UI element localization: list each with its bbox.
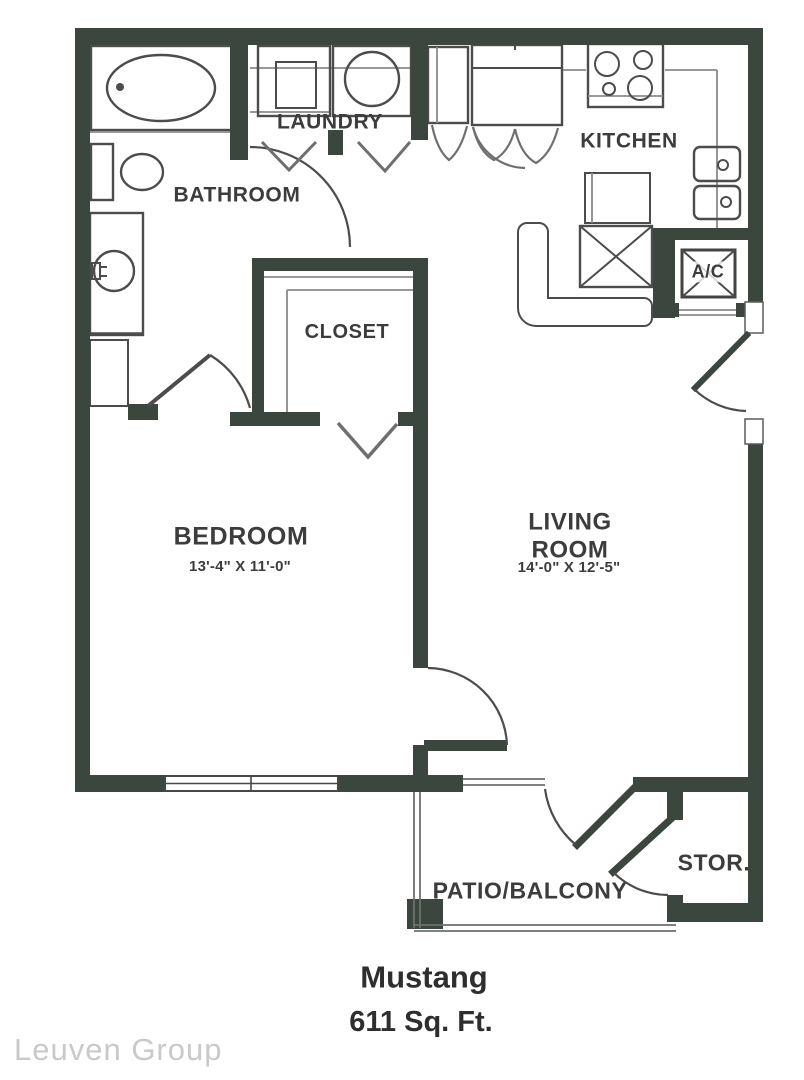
patio-glass-slider	[463, 779, 545, 785]
refrigerator	[472, 38, 562, 168]
door-living-patio	[545, 789, 633, 845]
patio-label: PATIO/BALCONY	[433, 877, 628, 904]
door-closet-bifold	[338, 423, 397, 457]
bedroom-window	[165, 776, 338, 791]
door-bedroom-living	[424, 668, 507, 751]
ac-label: A/C	[690, 261, 727, 282]
living-room-dimensions: 14'-0" X 12'-5"	[518, 559, 621, 577]
interior-walls	[128, 45, 763, 929]
laundry-label: LAUNDRY	[277, 111, 383, 136]
vanity-sink	[90, 213, 143, 335]
corner-cabinet	[428, 47, 468, 160]
dryer	[333, 46, 411, 116]
pantry-cabinet	[580, 173, 652, 287]
entry-door-jambs	[745, 302, 763, 444]
closet-label: CLOSET	[305, 321, 390, 345]
linen-closet	[90, 340, 128, 406]
stove	[588, 44, 663, 107]
door-entry	[694, 335, 747, 411]
door-bathroom-bedroom	[148, 355, 250, 408]
bedroom-label: BEDROOM	[174, 522, 309, 552]
closet-shelving	[264, 277, 424, 415]
watermark: Leuven Group	[14, 1032, 222, 1068]
plan-area: 611 Sq. Ft.	[349, 1005, 492, 1039]
storage-label: STOR.	[678, 849, 751, 876]
toilet	[91, 144, 163, 200]
patio-railing	[414, 792, 676, 931]
living-room-label: LIVING ROOM	[528, 509, 612, 566]
bedroom-dimensions: 13'-4" X 11'-0"	[189, 558, 291, 576]
washer	[258, 46, 330, 116]
plan-title: Mustang	[360, 960, 487, 997]
bathtub	[90, 46, 232, 132]
breakfast-bar	[518, 223, 652, 326]
bathroom-label: BATHROOM	[174, 184, 301, 209]
floor-plan-drawing	[0, 0, 804, 1080]
kitchen-label: KITCHEN	[580, 130, 678, 155]
floor-plan: BATHROOM LAUNDRY KITCHEN CLOSET A/C BEDR…	[0, 0, 804, 1080]
